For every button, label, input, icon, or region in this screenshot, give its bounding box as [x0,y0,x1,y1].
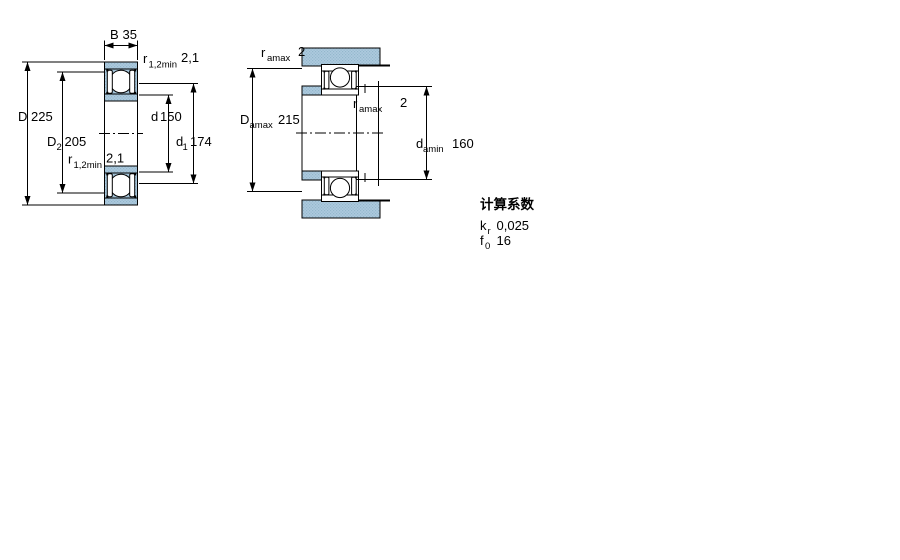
dim-d1-value: 174 [190,134,212,149]
shield-left [324,71,329,88]
bearing-section-bottom [322,171,359,202]
dim-r-subscript: 1,2min [149,60,178,71]
dim-d1: d 1 174 [139,84,212,184]
factor-kr-subscript: r [488,226,491,237]
dim-d-symbol: d [151,109,158,124]
dim-ra-symbol: r [353,96,358,111]
factor-f0-subscript: 0 [485,241,490,252]
dim-ra-subscript: amax [267,53,290,64]
shaft-shoulder-top [302,86,322,95]
bearing-drawing: B 35 r 1,2min 2,1 D 225 D 2 205 [0,0,900,560]
dim-Damax-subscript: amax [250,120,273,131]
label-r12-top: r 1,2min 2,1 [143,50,199,71]
bearing-section-top [105,62,138,101]
factor-kr-value: 0,025 [497,218,530,233]
dim-Damax-symbol: D [240,112,249,127]
factor-f0-symbol: f [480,233,484,248]
dim-Damax-value: 215 [278,112,300,127]
dim-ra-value: 2 [400,95,407,110]
bearing-section-bottom [105,166,138,205]
shield-left [107,174,112,197]
factor-kr-symbol: k [480,218,487,233]
shield-left [107,70,112,93]
dim-B-value: 35 [123,27,137,42]
dim-r-subscript: 1,2min [74,160,103,171]
shield-right [352,177,357,194]
ball [110,70,133,93]
dim-d-value: 150 [160,109,182,124]
dim-D2-subscript: 2 [57,142,62,153]
dim-D-value: 225 [31,109,53,124]
dim-r-symbol: r [143,51,148,66]
left-figure: B 35 r 1,2min 2,1 D 225 D 2 205 [18,27,212,205]
ball [330,68,349,87]
dim-B: B 35 [105,27,138,60]
dim-damin-subscript: amin [423,144,444,155]
ball [110,174,133,197]
factor-f0: f 0 16 [480,233,511,252]
shaft-shoulder-bottom [302,171,322,180]
shield-right [130,70,135,93]
dim-D2-value: 205 [65,134,87,149]
shield-right [130,174,135,197]
factor-f0-value: 16 [497,233,511,248]
shield-left [324,177,329,194]
calculation-factors: 计算系数 k r 0,025 f 0 16 [480,196,534,252]
dim-ra-subscript: amax [359,104,382,115]
housing-bottom [302,200,380,218]
label-ra-top: r amax 2 [261,44,305,64]
dim-ra-value: 2 [298,44,305,59]
dim-Damax: D amax 215 [240,69,302,192]
dim-d1-subscript: 1 [183,142,188,153]
dim-r-symbol: r [68,152,73,167]
dim-B-symbol: B [110,27,119,42]
dim-r-value: 2,1 [106,151,124,166]
dim-D-symbol: D [18,109,27,124]
bearing-section-top [322,65,359,96]
drawing-canvas: B 35 r 1,2min 2,1 D 225 D 2 205 [0,0,900,560]
dim-D2: D 2 205 [47,72,104,193]
ball [330,178,349,197]
right-figure: r amax 2 D amax 215 r amax 2 d amin 160 [240,44,474,218]
shield-right [352,71,357,88]
dim-D: D 225 [18,62,104,205]
dim-D2-symbol: D [47,134,56,149]
calc-factors-title: 计算系数 [480,196,534,212]
dim-r-value: 2,1 [181,50,199,65]
dim-damin-value: 160 [452,136,474,151]
housing-top [302,48,380,66]
label-ra-mid: r amax 2 [353,95,407,115]
dim-ra-symbol: r [261,45,266,60]
